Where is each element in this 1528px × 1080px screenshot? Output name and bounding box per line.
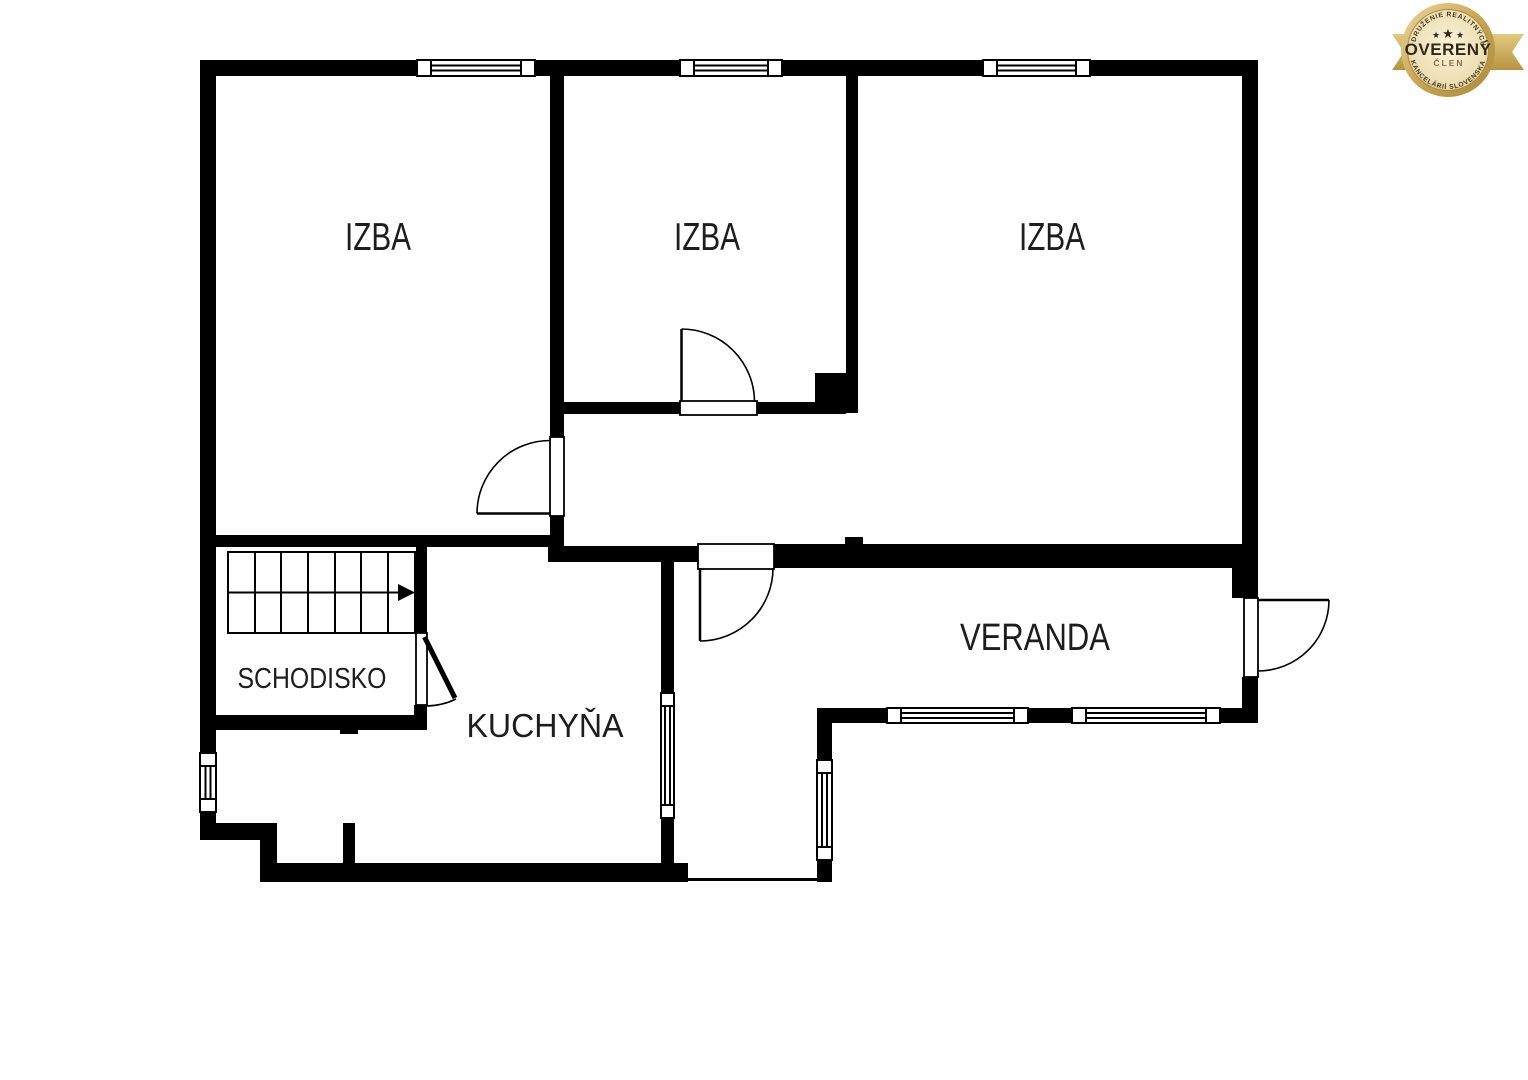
window (661, 693, 674, 818)
wall-nub (845, 537, 863, 544)
door-jamb (1244, 598, 1258, 677)
wall-segment (548, 546, 698, 562)
door (477, 441, 550, 514)
badge-arc-text-top: ZDRUŽENIE REALITNÝCH (0, 0, 1486, 47)
room-label-schodisko: SCHODISKO (238, 663, 387, 695)
window (887, 708, 1028, 723)
room-labels: IZBA IZBA IZBA VERANDA SCHODISKO KUCHYŇA (238, 216, 1111, 744)
wall-segment (661, 546, 674, 693)
wall-segment (562, 402, 680, 414)
room-label-kuchyna: KUCHYŇA (467, 707, 624, 744)
staircase (228, 552, 415, 633)
wall-segment (213, 715, 427, 730)
wall-segment (416, 546, 427, 633)
floor-plan: IZBA IZBA IZBA VERANDA SCHODISKO KUCHYŇA… (0, 0, 1528, 1080)
wall-segment (260, 823, 277, 882)
window (200, 753, 216, 812)
wall-segment (817, 708, 832, 760)
door (700, 568, 773, 641)
wall-segment (782, 60, 983, 76)
wall-segment (846, 75, 858, 377)
wall-segment (277, 863, 688, 882)
room-label-izba-left: IZBA (345, 216, 411, 259)
door-jamb (698, 544, 774, 569)
wall-segment (550, 515, 564, 546)
wall-segment (200, 60, 417, 76)
wall-segment (757, 402, 846, 414)
wall-segment (817, 860, 832, 882)
wall-segment (1232, 568, 1258, 598)
window (817, 760, 832, 860)
window (983, 60, 1090, 76)
room-label-izba-right: IZBA (1019, 216, 1085, 259)
wall-segment (550, 60, 564, 438)
wall-stub (343, 823, 355, 867)
windows (200, 60, 1220, 860)
door-jamb (680, 401, 757, 415)
window (417, 60, 535, 76)
wall-segment (1090, 60, 1258, 76)
door (682, 329, 755, 402)
window (1072, 708, 1220, 723)
room-label-veranda: VERANDA (960, 617, 1111, 659)
badge-subtitle: ČLEN (1433, 57, 1464, 68)
door-jamb (550, 437, 564, 516)
star-icon: ★ (1432, 30, 1440, 40)
wall-segment (1220, 708, 1258, 723)
star-icon: ★ (1442, 26, 1454, 41)
star-icon: ★ (1456, 30, 1464, 40)
wall-segment (200, 60, 216, 753)
door (1258, 600, 1329, 671)
door (425, 637, 457, 706)
wall-segment (774, 544, 1258, 568)
wall-segment (1242, 60, 1258, 544)
floor-plan-page: IZBA IZBA IZBA VERANDA SCHODISKO KUCHYŇA… (0, 0, 1528, 1080)
wall-segment (213, 535, 550, 547)
wall-nub (340, 730, 358, 734)
wall-segment (1028, 708, 1072, 723)
threshold-line (688, 878, 817, 881)
badge-title: OVERENÝ (1405, 40, 1492, 59)
window (680, 60, 782, 76)
walls (200, 60, 1258, 882)
verified-badge: ZDRUŽENIE REALITNÝCH KANCELÁRIÍ SLOVENSK… (0, 0, 1524, 97)
room-label-izba-middle: IZBA (674, 216, 740, 259)
